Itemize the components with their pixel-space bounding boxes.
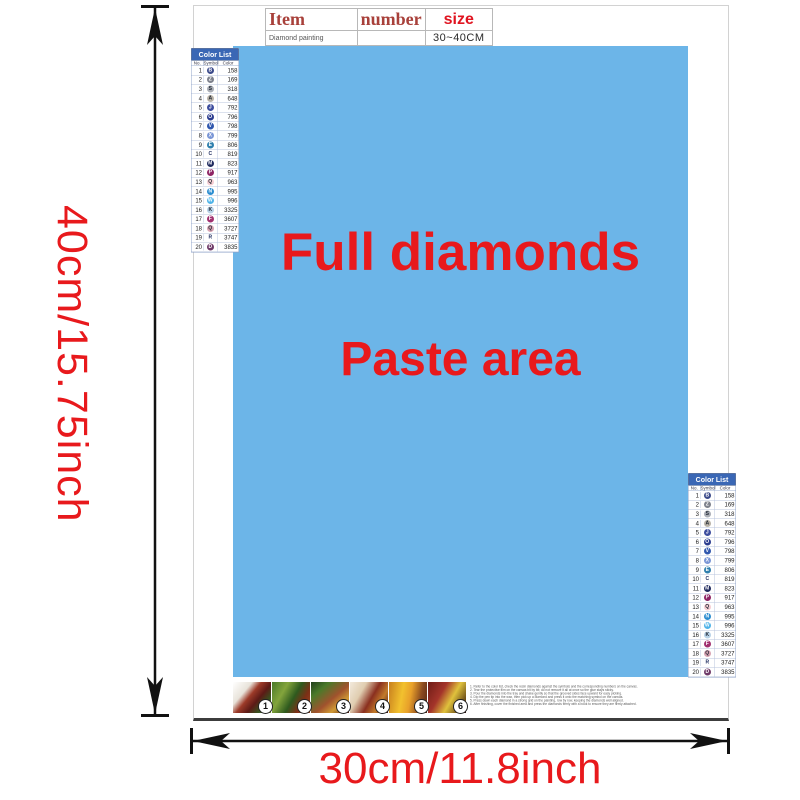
dmc-code: 963 [218,178,239,185]
dmc-code: 792 [715,529,736,536]
color-list-title: Color List [192,49,239,61]
symbol-cell: V [204,122,218,131]
dmc-code: 996 [218,197,239,204]
symbol-cell: E [204,140,218,149]
diamond-color-dot-icon: J [704,529,711,536]
step-photo-strip: 1 2 3 4 5 6 [233,682,467,713]
color-list-row: 6 O 796 [689,537,736,546]
diamond-color-dot-icon: Q [704,650,711,657]
dmc-code: 648 [218,95,239,102]
step-photo: 3 [311,682,350,713]
symbol-cell: P [701,593,715,602]
paste-area: Full diamonds Paste area [233,46,688,677]
color-list-row: 4 A 648 [192,94,239,103]
symbol-cell: O [701,537,715,546]
dmc-code: 799 [218,132,239,139]
row-number: 11 [192,160,204,167]
row-number: 5 [689,529,701,536]
diamond-color-dot-icon: A [704,520,711,527]
diamond-color-dot-icon: Z [207,76,214,83]
color-list-row: 20 D 3835 [689,668,736,677]
dmc-code: 3325 [218,206,239,213]
step-number-badge: 1 [258,699,273,714]
row-number: 7 [689,548,701,555]
dmc-code: 158 [715,492,736,499]
row-number: 19 [689,659,701,666]
symbol-cell: X [204,131,218,140]
color-list-row: 2 Z 169 [192,75,239,84]
color-list-row: 14 N 995 [689,612,736,621]
diamond-color-dot-icon: P [704,594,711,601]
symbol-cell: A [204,94,218,103]
color-list-row: 5 J 792 [689,528,736,537]
symbol-cell: M [701,584,715,593]
row-number: 2 [689,501,701,508]
symbol-cell: F [204,215,218,224]
color-list-row: 16 K 3325 [192,205,239,214]
dmc-code: 963 [715,603,736,610]
color-list-row: 15 W 996 [192,196,239,205]
symbol-cell: Q [701,649,715,658]
step-number-badge: 4 [375,699,390,714]
diamond-color-dot-icon: Q [207,178,214,185]
color-list-row: 1 B 158 [689,491,736,500]
row-number: 6 [689,538,701,545]
row-number: 16 [689,631,701,638]
symbol-cell: D [204,243,218,252]
color-list-row: 18 Q 3727 [192,224,239,233]
diamond-color-dot-icon: V [207,123,214,130]
row-number: 14 [689,613,701,620]
symbol-cell: W [204,196,218,205]
symbol-cell: A [701,519,715,528]
diamond-color-dot-icon: X [704,557,711,564]
symbol-cell: Q [204,178,218,187]
dmc-code: 318 [715,510,736,517]
dmc-code: 3607 [218,216,239,223]
dmc-code: 796 [218,113,239,120]
color-list-row: 9 E 806 [192,140,239,149]
dmc-code: 798 [218,123,239,130]
vertical-dimension-arrow-icon [140,3,170,719]
number-header: number [357,9,425,31]
dmc-code: 3747 [715,659,736,666]
color-list-row: 19 R 3747 [192,233,239,242]
step-number-badge: 6 [453,699,468,714]
dmc-code: 169 [218,76,239,83]
diamond-color-dot-icon: K [207,206,214,213]
row-number: 1 [689,492,701,499]
paste-area-title-line2: Paste area [233,282,688,387]
dmc-code: 819 [715,576,736,583]
dmc-code: 3747 [218,234,239,241]
color-list-row: 17 F 3607 [192,215,239,224]
row-number: 11 [689,585,701,592]
color-list-title: Color List [689,474,736,486]
step-number-badge: 5 [414,699,429,714]
height-dimension-label: 40cm/15.75inch [50,205,93,523]
dmc-code: 995 [715,613,736,620]
diamond-color-dot-icon: C [704,576,711,583]
dmc-code: 3325 [715,631,736,638]
diamond-color-dot-icon: V [704,548,711,555]
diamond-color-dot-icon: M [704,585,711,592]
col-color: Color [715,486,736,491]
color-list-body: 1 B 158 2 Z 169 3 S 318 4 A [689,491,736,677]
diamond-color-dot-icon: X [207,132,214,139]
step-photo: 1 [233,682,272,713]
dmc-code: 792 [218,104,239,111]
item-value: Diamond painting [266,31,358,46]
symbol-cell: N [204,187,218,196]
symbol-cell: B [701,491,715,500]
color-list-row: 3 S 318 [689,510,736,519]
row-number: 9 [689,566,701,573]
product-size-diagram: Item number size Diamond painting 30~40C… [0,0,800,800]
col-no: No. [689,486,701,491]
color-list-row: 1 B 158 [192,66,239,75]
diamond-color-dot-icon: Z [704,501,711,508]
color-list-right: Color List No. Symbol Color 1 B 158 2 Z … [688,473,736,677]
col-no: No. [192,61,204,66]
row-number: 8 [689,557,701,564]
step-photo: 4 [350,682,389,713]
item-header: Item [266,9,358,31]
color-list-row: 12 P 917 [689,593,736,602]
diamond-color-dot-icon: D [207,244,214,251]
color-list-row: 6 O 796 [192,112,239,121]
dmc-code: 917 [715,594,736,601]
step-number-badge: 2 [297,699,312,714]
diamond-color-dot-icon: O [207,113,214,120]
symbol-cell: Z [204,75,218,84]
row-number: 13 [689,603,701,610]
diamond-color-dot-icon: D [704,669,711,676]
symbol-cell: R [204,233,218,242]
color-list-row: 11 M 823 [689,584,736,593]
color-list-body: 1 B 158 2 Z 169 3 S 318 4 A [192,66,239,252]
symbol-cell: Q [204,224,218,233]
symbol-cell: J [204,103,218,112]
color-list-row: 10 C 819 [689,575,736,584]
row-number: 20 [689,669,701,676]
col-color: Color [218,61,239,66]
symbol-cell: X [701,556,715,565]
symbol-cell: B [204,66,218,75]
row-number: 12 [689,594,701,601]
symbol-cell: C [701,575,715,584]
dmc-code: 819 [218,151,239,158]
row-number: 10 [689,576,701,583]
symbol-cell: P [204,168,218,177]
dmc-code: 996 [715,622,736,629]
color-list-row: 8 X 799 [192,131,239,140]
color-list-row: 7 V 798 [192,122,239,131]
dmc-code: 806 [218,141,239,148]
diamond-color-dot-icon: E [704,566,711,573]
color-list-row: 12 P 917 [192,168,239,177]
dmc-code: 3607 [715,641,736,648]
row-number: 1 [192,67,204,74]
symbol-cell: O [204,112,218,121]
color-list-row: 8 X 799 [689,556,736,565]
symbol-cell: V [701,547,715,556]
symbol-cell: S [701,510,715,519]
diamond-color-dot-icon: F [207,216,214,223]
row-number: 14 [192,188,204,195]
symbol-cell: R [701,658,715,667]
diamond-color-dot-icon: K [704,631,711,638]
row-number: 17 [689,641,701,648]
row-number: 2 [192,76,204,83]
paste-area-title-line1: Full diamonds [233,46,688,282]
dmc-code: 3727 [715,650,736,657]
dmc-code: 3835 [218,244,239,251]
row-number: 17 [192,216,204,223]
symbol-cell: K [701,630,715,639]
diamond-color-dot-icon: E [207,141,214,148]
item-table-data-row: Diamond painting 30~40CM [266,31,493,46]
dmc-code: 806 [715,566,736,573]
color-list-row: 5 J 792 [192,103,239,112]
symbol-cell: W [701,621,715,630]
dmc-code: 318 [218,85,239,92]
dmc-code: 823 [715,585,736,592]
symbol-cell: D [701,668,715,677]
item-table-header-row: Item number size [266,9,493,31]
row-number: 5 [192,104,204,111]
instruction-line: 6. After finishing, cover the finished a… [470,703,710,707]
color-list-row: 15 W 996 [689,621,736,630]
symbol-cell: F [701,640,715,649]
color-list-row: 17 F 3607 [689,640,736,649]
row-number: 18 [689,650,701,657]
color-list-row: 10 C 819 [192,150,239,159]
diamond-color-dot-icon: M [207,160,214,167]
symbol-cell: K [204,205,218,214]
color-list-row: 2 Z 169 [689,500,736,509]
color-list-row: 9 E 806 [689,565,736,574]
col-symbol: Symbol [701,486,715,491]
row-number: 7 [192,123,204,130]
dmc-code: 796 [715,538,736,545]
color-list-row: 13 Q 963 [689,603,736,612]
dmc-code: 823 [218,160,239,167]
diamond-color-dot-icon: B [207,67,214,74]
diamond-color-dot-icon: F [704,641,711,648]
dmc-code: 158 [218,67,239,74]
size-header: size [425,9,492,31]
color-list-row: 19 R 3747 [689,658,736,667]
diamond-color-dot-icon: Q [207,225,214,232]
dmc-code: 995 [218,188,239,195]
col-symbol: Symbol [204,61,218,66]
step-photo: 2 [272,682,311,713]
color-list-row: 13 Q 963 [192,178,239,187]
number-value [357,31,425,46]
diamond-color-dot-icon: R [207,234,214,241]
dmc-code: 3835 [715,669,736,676]
step-number-badge: 3 [336,699,351,714]
row-number: 15 [192,197,204,204]
row-number: 8 [192,132,204,139]
color-list-row: 11 M 823 [192,159,239,168]
size-value: 30~40CM [425,31,492,46]
color-list-row: 3 S 318 [192,85,239,94]
color-list-row: 14 N 995 [192,187,239,196]
row-number: 4 [689,520,701,527]
diamond-color-dot-icon: J [207,104,214,111]
row-number: 20 [192,244,204,251]
width-dimension-label: 30cm/11.8inch [190,747,730,791]
row-number: 16 [192,206,204,213]
row-number: 6 [192,113,204,120]
diamond-color-dot-icon: C [207,151,214,158]
row-number: 13 [192,178,204,185]
dmc-code: 169 [715,501,736,508]
row-number: 10 [192,151,204,158]
symbol-cell: Q [701,603,715,612]
symbol-cell: C [204,150,218,159]
item-info-table: Item number size Diamond painting 30~40C… [265,8,493,46]
row-number: 18 [192,225,204,232]
symbol-cell: M [204,159,218,168]
symbol-cell: E [701,565,715,574]
diamond-color-dot-icon: A [207,95,214,102]
color-list-row: 7 V 798 [689,547,736,556]
symbol-cell: J [701,528,715,537]
symbol-cell: N [701,612,715,621]
color-list-row: 18 Q 3727 [689,649,736,658]
row-number: 9 [192,141,204,148]
diamond-color-dot-icon: Q [704,603,711,610]
step-photo: 6 [428,682,467,713]
row-number: 3 [689,510,701,517]
diamond-color-dot-icon: W [704,622,711,629]
dmc-code: 799 [715,557,736,564]
diamond-color-dot-icon: N [704,613,711,620]
symbol-cell: S [204,85,218,94]
dmc-code: 917 [218,169,239,176]
dmc-code: 798 [715,548,736,555]
diamond-color-dot-icon: W [207,197,214,204]
row-number: 4 [192,95,204,102]
dmc-code: 648 [715,520,736,527]
step-photo: 5 [389,682,428,713]
diamond-color-dot-icon: S [207,85,214,92]
diamond-color-dot-icon: P [207,169,214,176]
row-number: 12 [192,169,204,176]
row-number: 19 [192,234,204,241]
row-number: 3 [192,85,204,92]
symbol-cell: Z [701,500,715,509]
row-number: 15 [689,622,701,629]
diamond-color-dot-icon: R [704,659,711,666]
dmc-code: 3727 [218,225,239,232]
color-list-left: Color List No. Symbol Color 1 B 158 2 Z … [191,48,239,252]
diamond-color-dot-icon: O [704,538,711,545]
diamond-color-dot-icon: N [207,188,214,195]
color-list-row: 4 A 648 [689,519,736,528]
diamond-color-dot-icon: S [704,510,711,517]
diamond-color-dot-icon: B [704,492,711,499]
color-list-row: 20 D 3835 [192,243,239,252]
instructions-block: 1. Refer to the color list, check the re… [470,685,710,706]
color-list-row: 16 K 3325 [689,630,736,639]
